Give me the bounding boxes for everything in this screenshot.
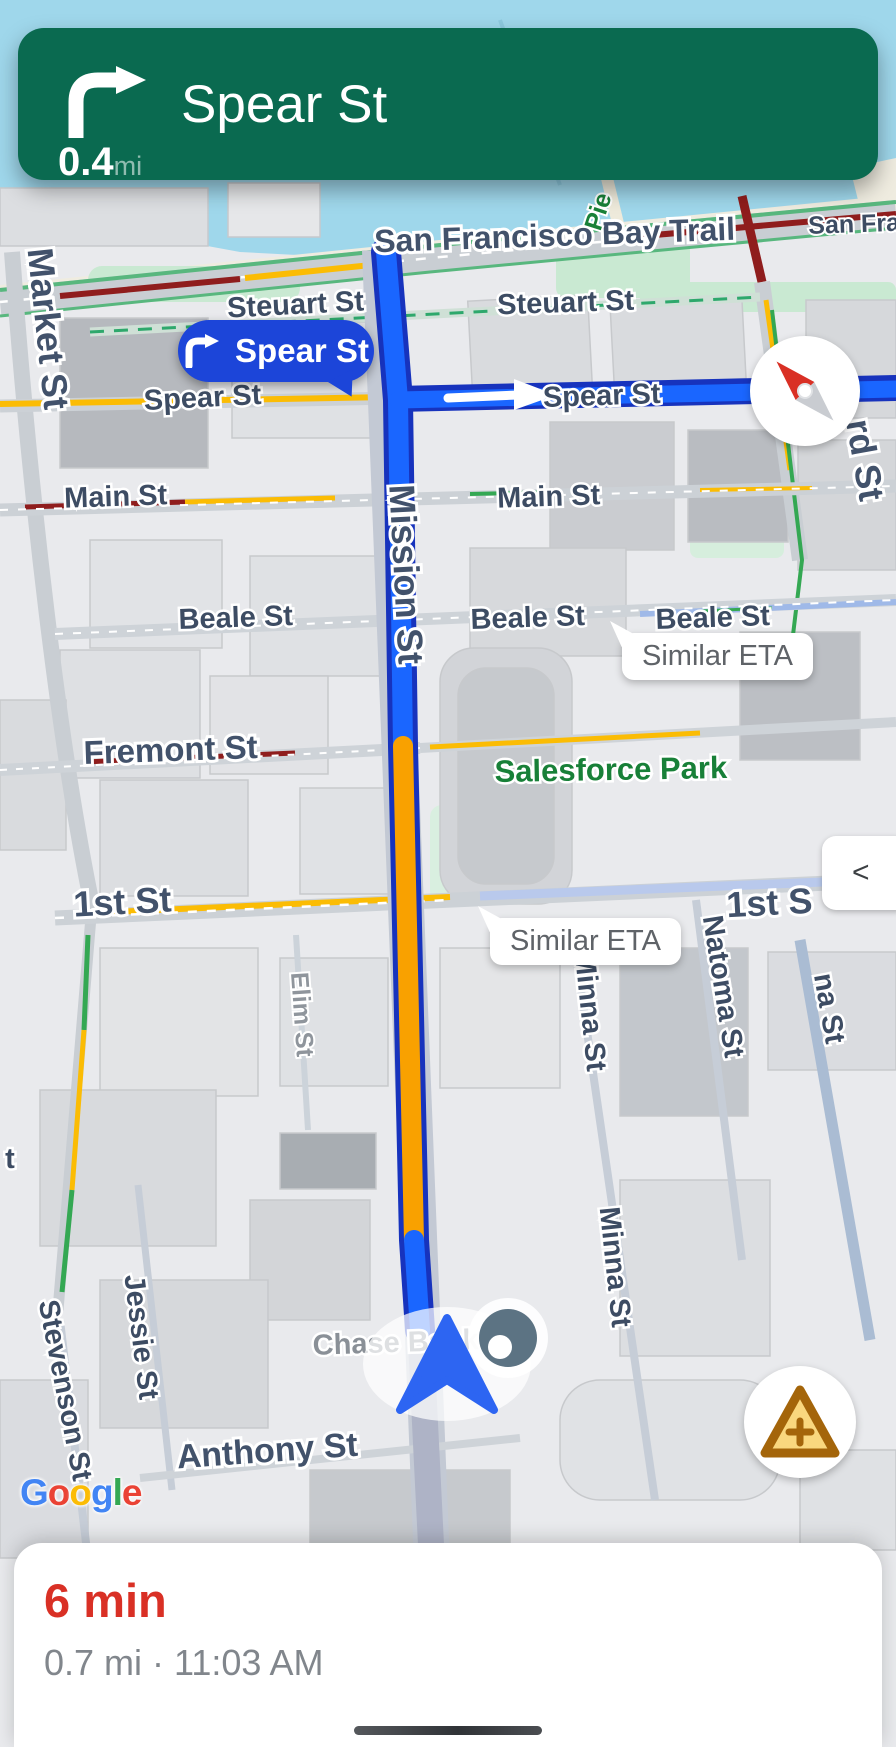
label-main-st-1: Main St [64, 479, 169, 515]
eta-callout-label: Similar ETA [510, 925, 661, 957]
report-hazard-button[interactable] [744, 1366, 856, 1478]
label-1st-st-left: 1st St [72, 878, 172, 924]
turn-right-icon [62, 66, 162, 138]
label-salesforce-park: Salesforce Park [494, 750, 728, 789]
label-beale-st-3: Beale St [655, 600, 771, 636]
location-puck [363, 1298, 548, 1421]
eta-callout-1st[interactable]: Similar ETA [490, 918, 681, 965]
label-spear-st-right: Spear St [542, 378, 661, 414]
turn-callout: Spear St [178, 320, 374, 382]
label-san-fran: San Fran [808, 208, 896, 240]
route-arrow-shaft [448, 395, 518, 398]
label-beale-st-2: Beale St [470, 600, 586, 636]
label-anthony-st: Anthony St [175, 1426, 359, 1477]
google-logo: Google [20, 1472, 141, 1514]
turn-distance-unit: mi [114, 151, 143, 181]
eta-callout-label: Similar ETA [642, 640, 793, 672]
label-main-st-2: Main St [497, 479, 602, 515]
eta-callout-beale[interactable]: Similar ETA [622, 633, 813, 680]
hazard-warning-icon [744, 1366, 856, 1478]
label-t-partial: t [5, 1143, 15, 1175]
label-fremont-st: Fremont St [83, 728, 258, 771]
banner-street-name: Spear St [181, 28, 387, 180]
label-beale-st-1: Beale St [178, 600, 294, 636]
label-1st-st-right: 1st S [725, 880, 813, 925]
label-steuart-st-2: Steuart St [497, 285, 635, 322]
trip-summary-sheet[interactable]: 6 min 0.7 mi · 11:03 AM [14, 1543, 882, 1747]
puck-beacon [479, 1309, 537, 1367]
chevron-left-icon: < [852, 856, 870, 890]
compass-button[interactable] [750, 336, 860, 446]
turn-right-icon [183, 334, 223, 368]
turn-distance-value: 0.4 [58, 140, 114, 184]
trip-distance-arrival: 0.7 mi · 11:03 AM [44, 1642, 882, 1684]
label-minna-st-1: Minna St [568, 949, 612, 1073]
turn-callout-label: Spear St [235, 332, 369, 370]
trip-eta: 6 min [44, 1573, 882, 1628]
collapse-panel-button[interactable]: < [822, 836, 896, 910]
turn-distance: 0.4mi [58, 140, 142, 185]
navigation-screen: San Francisco Bay Trail San Fran Pie Mar… [0, 0, 896, 1747]
sheet-drag-handle[interactable] [354, 1726, 542, 1735]
next-turn-banner[interactable]: 0.4mi Spear St [18, 28, 878, 180]
compass-needle-icon [750, 336, 860, 446]
label-elim-st: Elim St [285, 971, 319, 1058]
label-spear-st-left: Spear St [143, 379, 263, 417]
